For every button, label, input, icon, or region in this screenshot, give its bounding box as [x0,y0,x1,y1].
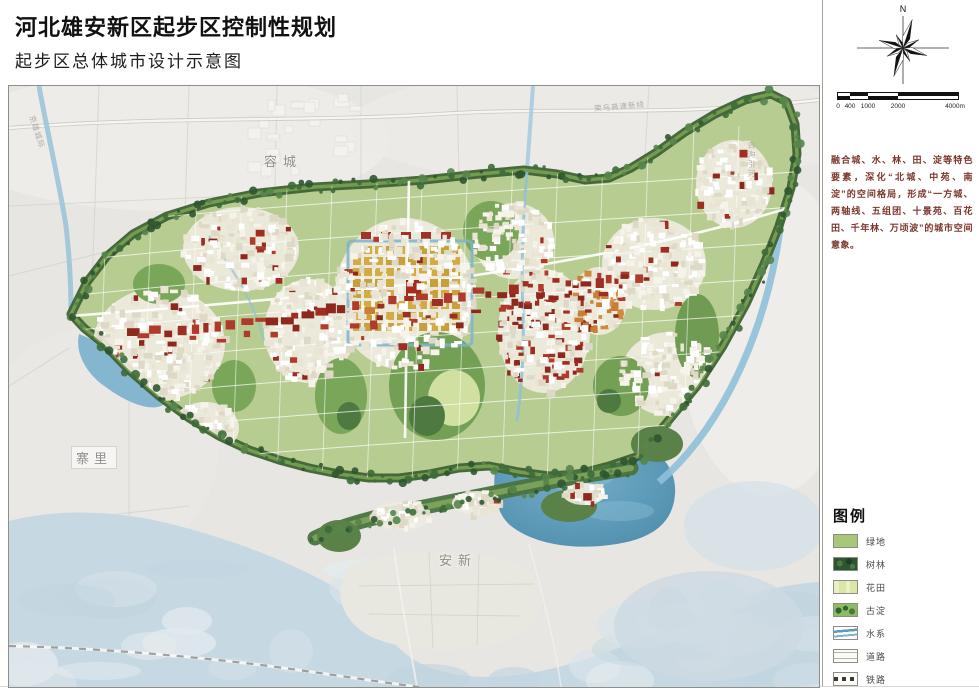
scale-tick: 4000m [945,103,965,110]
scale-bar: 0 400 1000 2000 4000m [837,92,969,114]
marsh-patch [684,481,819,571]
scale-bar-segments [837,92,959,100]
legend-swatch-marsh [833,603,858,617]
legend-swatch-railway [833,672,858,686]
header: 河北雄安新区起步区控制性规划 起步区总体城市设计示意图 [0,0,820,85]
compass-rose-icon: N [851,2,955,86]
legend-title: 图例 [833,505,973,526]
sidebar: N 0 400 1000 2000 4000m 融合城、水、林、田、淀等特色要素… [822,0,979,686]
scale-tick: 1000 [861,103,875,110]
legend-item-forest: 树林 [833,557,973,571]
map-label-rongcheng: 容城 [264,151,302,170]
map-canvas: 容城 寨里 安新 荣乌高速新线 白沟引河 京雄城际 [8,85,820,688]
map-label-baigou-river: 白沟引河 [746,141,757,179]
legend-swatch-flowerfield [833,580,858,594]
legend-item-water: 水系 [833,626,973,640]
legend-swatch-greenspace [833,534,858,548]
page-title: 河北雄安新区起步区控制性规划 [15,10,337,42]
legend-item-greenspace: 绿地 [833,534,973,548]
plan-description: 融合城、水、林、田、淀等特色要素，深化“北城、中苑、南淀”的空间格局，形成“一方… [831,152,973,255]
legend-swatch-water [833,626,858,640]
legend: 图例 绿地 树林 花田 古淀 水系 道路 [833,505,973,695]
map-label-anxin: 安新 [439,550,477,569]
scale-tick: 0 [836,103,840,110]
north-letter: N [900,4,907,14]
plan-map-graphic [9,86,819,687]
page: 河北雄安新区起步区控制性规划 起步区总体城市设计示意图 [0,0,979,686]
legend-item-marsh: 古淀 [833,603,973,617]
marsh-patch [614,571,804,681]
scale-tick: 2000 [891,103,905,110]
legend-item-road: 道路 [833,649,973,663]
map-label-zhaili: 寨里 [71,446,117,469]
page-subtitle: 起步区总体城市设计示意图 [15,47,243,72]
legend-swatch-forest [833,557,858,571]
legend-item-flowerfield: 花田 [833,580,973,594]
legend-swatch-road [833,649,858,663]
scale-tick: 400 [845,103,856,110]
legend-item-railway: 铁路 [833,672,973,686]
